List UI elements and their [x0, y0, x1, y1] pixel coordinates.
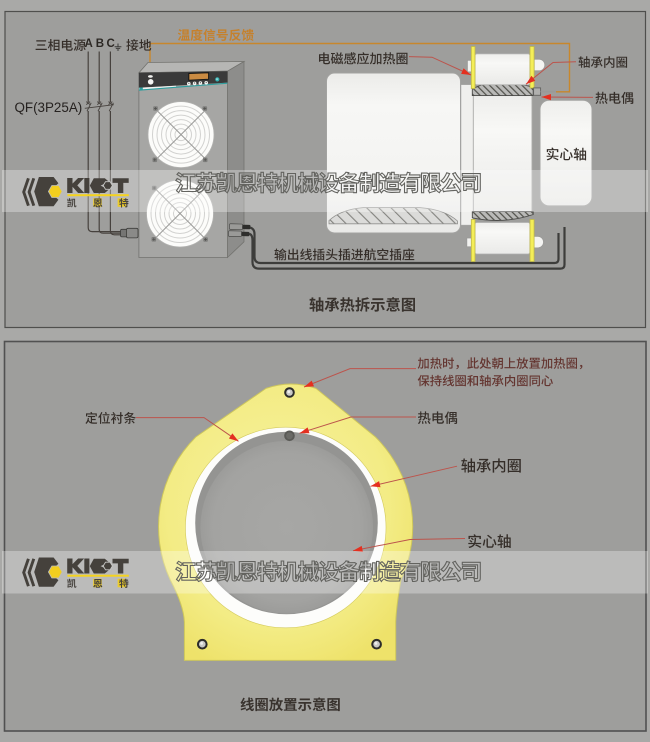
svg-text:C: C — [107, 38, 115, 50]
svg-text:A: A — [85, 38, 93, 50]
svg-text:B: B — [96, 38, 104, 50]
svg-text:QF(3P25A): QF(3P25A) — [15, 100, 83, 115]
